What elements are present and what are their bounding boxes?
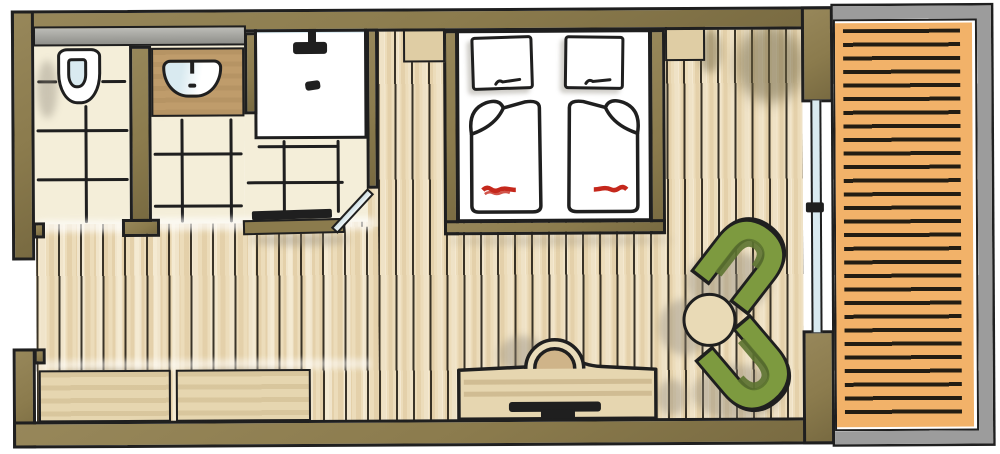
tile-line	[247, 181, 344, 184]
tile-line	[154, 204, 243, 207]
bed-frame-foot	[444, 219, 666, 235]
duvet-left	[465, 94, 548, 216]
toilet-bowl	[67, 58, 87, 88]
wall-left-upper	[11, 10, 35, 260]
tile-line	[154, 152, 243, 155]
mirror-strip	[33, 25, 246, 46]
bed-frame-right	[649, 29, 666, 234]
deck-slats	[843, 29, 962, 424]
tile-line	[101, 80, 126, 83]
bench	[243, 218, 345, 235]
wall-right-upper	[801, 6, 834, 102]
partition-wc-sink	[129, 46, 152, 223]
pillow-left	[470, 35, 534, 91]
balcony-frame	[833, 5, 993, 444]
balcony-door-glass	[810, 100, 822, 332]
balcony-deck	[835, 23, 974, 428]
tile-line	[258, 145, 340, 148]
nightstand-left	[403, 28, 445, 62]
tv-stand	[541, 410, 575, 419]
faucet-icon	[190, 62, 194, 74]
sketch-canvas	[0, 0, 1000, 454]
pillow-mark-icon	[493, 74, 523, 87]
partition-wc-sink-stub	[122, 219, 160, 237]
wall-right-lower	[803, 330, 836, 444]
balcony-door-handle	[806, 202, 824, 212]
sideboard-left	[39, 370, 171, 423]
wall-bottom	[13, 417, 835, 448]
duvet-right	[561, 93, 644, 215]
shadow	[736, 24, 804, 102]
wall-left-lower-stub	[34, 348, 46, 364]
nightstand-right	[665, 25, 705, 61]
shadow	[37, 60, 57, 118]
floor-plan-scene	[0, 0, 1000, 454]
pillow-mark-icon	[583, 74, 613, 86]
tile-line	[337, 140, 340, 213]
tile-line	[36, 129, 128, 132]
wall-left-upper-stub	[33, 222, 45, 238]
sideboard-right	[176, 369, 311, 422]
pillow-right	[564, 35, 625, 90]
shadow	[657, 379, 687, 415]
toilet	[57, 48, 101, 104]
shower-head-icon	[293, 42, 327, 54]
tile-line	[283, 140, 286, 218]
partition-bath-bedroom	[366, 29, 379, 189]
bed-frame-left	[443, 30, 459, 235]
faucet-icon	[188, 84, 196, 88]
desk-chair	[522, 329, 588, 371]
tile-line	[37, 178, 129, 181]
